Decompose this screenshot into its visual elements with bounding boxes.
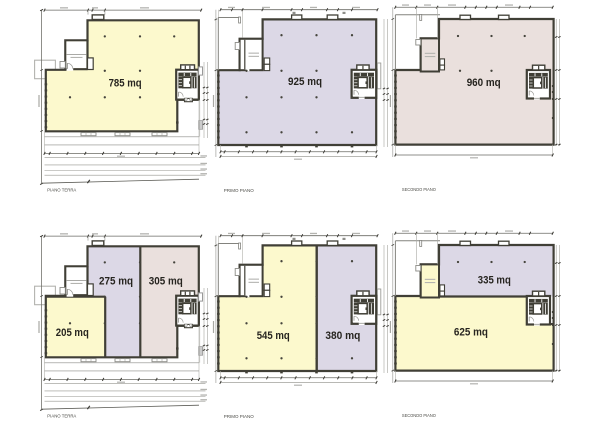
svg-text:335 mq: 335 mq (478, 274, 511, 286)
svg-text:380 mq: 380 mq (325, 330, 360, 342)
svg-text:SECONDO PIANO: SECONDO PIANO (402, 413, 437, 418)
svg-text:275 mq: 275 mq (99, 276, 133, 288)
svg-text:785 mq: 785 mq (109, 77, 142, 89)
svg-text:625 mq: 625 mq (454, 326, 488, 338)
svg-text:SECONDO PIANO: SECONDO PIANO (402, 187, 437, 192)
svg-text:PRIMO PIANO: PRIMO PIANO (224, 188, 255, 193)
svg-text:925 mq: 925 mq (288, 76, 322, 88)
svg-text:205 mq: 205 mq (56, 327, 89, 339)
svg-text:PRIMO PIANO: PRIMO PIANO (224, 414, 255, 419)
svg-text:PIANO TERRA: PIANO TERRA (47, 188, 76, 193)
svg-text:PIANO TERRA: PIANO TERRA (47, 414, 76, 419)
svg-text:960 mq: 960 mq (467, 77, 501, 89)
svg-text:545 mq: 545 mq (257, 330, 290, 342)
svg-text:305 mq: 305 mq (149, 276, 183, 288)
